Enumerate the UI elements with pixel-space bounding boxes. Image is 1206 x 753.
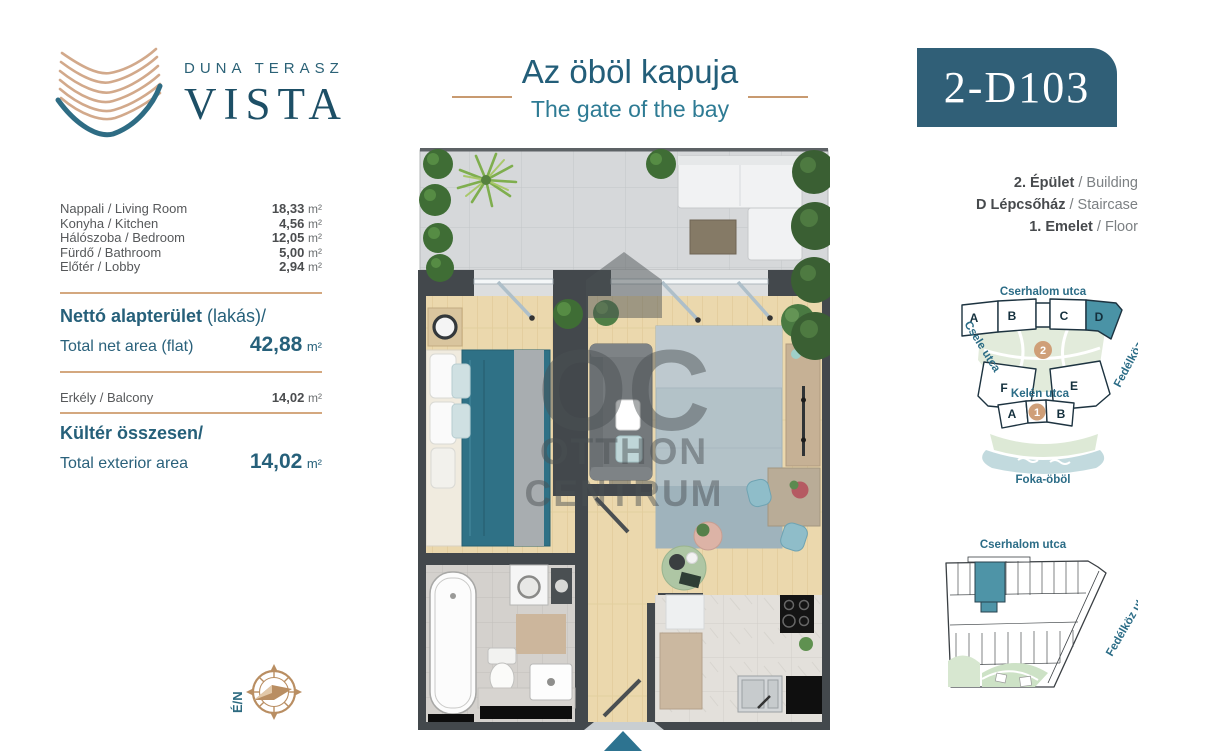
room-unit: m² [308,246,322,260]
divider [60,412,322,414]
kitchen-cabinet [666,595,704,629]
bath-mat [516,614,566,654]
brand-line1: DUNA TERASZ [184,60,348,77]
shore-green [990,434,1098,457]
brand-text: DUNA TERASZ VISTA [184,60,348,130]
compass-north-label: É/N [230,691,245,713]
room-value: 12,05 [272,230,305,245]
clock [434,316,456,338]
room-unit: m² [308,260,322,274]
kitchen-island [660,633,702,709]
plant-highlight [785,308,799,322]
floor-line: 1. Emelet / Floor [858,216,1138,238]
watermark-line2: CENTRUM [525,473,724,514]
dark-mat [480,706,572,719]
block-E-label: E [1070,379,1078,393]
bed [426,350,550,546]
room-row: Hálószoba / Bedroom 12,05 m² [60,230,322,245]
street-label-mid: Kelén utca [1011,388,1070,400]
room-unit: m² [308,202,322,216]
lower-block-A-label: A [1008,407,1017,421]
divider [60,292,322,294]
room-label: Előtér / Lobby [60,259,140,274]
building-rest: / Building [1074,175,1138,191]
building-line: 2. Épület / Building [858,172,1138,194]
brochure-page: DUNA TERASZ VISTA Az öböl kapuja The gat… [0,0,1206,753]
street-label-top: Cserhalom utca [1000,286,1087,298]
room-value: 4,56 [279,216,304,231]
brand-line2: VISTA [184,78,348,130]
unit-code-badge: 2-D103 [917,48,1117,127]
room-unit: m² [308,217,322,231]
block-B-label: B [1008,309,1017,323]
hob [780,595,814,633]
room-value: 5,00 [279,245,304,260]
room-value: 2,94 [279,259,304,274]
exterior-line: Total exterior area 14,02 m² [60,450,322,474]
phase-2-number: 2 [1040,345,1046,357]
dark-mat [428,714,474,723]
floor-rest: / Floor [1093,219,1138,235]
room-label: Konyha / Kitchen [60,216,158,231]
title-hungarian: Az öböl kapuja [440,53,820,91]
room-value: 18,33 [272,201,305,216]
floor-mini-map: Cserhalom utca [938,537,1138,719]
appliance [786,676,822,714]
entrance-marker [604,731,642,751]
building-bold: 2. Épület [1014,175,1074,191]
location-info: 2. Épület / Building D Lépcsőház / Stair… [858,172,1138,238]
room-row: Konyha / Kitchen 4,56 m² [60,216,322,231]
balcony-value: 14,02 [272,390,305,405]
project-title: Az öböl kapuja The gate of the bay [440,53,820,123]
room-row: Előtér / Lobby 2,94 m² [60,259,322,274]
title-rule-right [748,96,808,98]
street-label-top: Cserhalom utca [980,539,1067,551]
floor-plan: OC OTTHON CENTRUM [418,148,830,730]
block-connector [1036,303,1050,327]
room-area-list: Nappali / Living Room 18,33 m² Konyha / … [60,201,322,274]
exterior-title: Kültér összesen/ [60,423,203,444]
sideboard [786,344,820,466]
net-area-line: Total net area (flat) 42,88 m² [60,333,322,357]
staircase-line: D Lépcsőház / Staircase [858,194,1138,216]
room-unit: m² [308,231,322,245]
exterior-value: 14,02 [250,450,303,473]
block-B [998,299,1036,332]
exterior-label: Total exterior area [60,455,188,473]
divider [60,371,322,373]
block-C-label: C [1060,309,1069,323]
room-label: Hálószoba / Bedroom [60,230,185,245]
net-area-label: Total net area (flat) [60,338,193,356]
toilet [488,648,516,693]
street-label-right: Fedélköz utca [1104,586,1138,658]
kitchen [655,595,822,722]
net-area-value: 42,88 [250,333,303,356]
block-D-label: D [1095,310,1104,324]
staircase-bold: D Lépcsőház [976,197,1065,213]
room-label: Fürdő / Bathroom [60,245,161,260]
brand-swoosh-icon [52,45,167,141]
side-table [694,522,722,550]
room-label: Nappali / Living Room [60,201,187,216]
herb-pot [799,637,813,651]
kitchen-sink [738,676,782,712]
room-row: Nappali / Living Room 18,33 m² [60,201,322,216]
site-map: Cserhalom utca A B C D F E 2 Csele utca … [948,284,1138,486]
bathroom [426,565,575,723]
lower-block-B-label: B [1057,407,1066,421]
plant-highlight [557,302,571,316]
title-english: The gate of the bay [440,96,820,123]
room-row: Fürdő / Bathroom 5,00 m² [60,245,322,260]
net-area-title: Nettó alapterület (lakás)/ [60,306,266,327]
compass-icon: É/N [226,656,308,726]
net-area-title-bold: Nettó alapterület [60,306,202,326]
bay-label: Foka-öböl [1016,474,1071,486]
floor-bold: 1. Emelet [1029,219,1093,235]
balcony-unit: m² [308,391,322,405]
exterior-unit: m² [307,456,322,471]
block-F-label: F [1000,381,1007,395]
balcony-row: Erkély / Balcony 14,02 m² [60,390,322,405]
net-area-unit: m² [307,339,322,354]
watermark-line1: OTTHON [540,431,708,472]
net-area-title-rest: (lakás)/ [202,306,266,326]
phase-1-number: 1 [1034,407,1040,419]
balcony-label: Erkély / Balcony [60,390,153,405]
coffee-table [662,546,706,590]
title-rule-left [452,96,512,98]
staircase-rest: / Staircase [1065,197,1138,213]
entrance-threshold [584,722,664,730]
outdoor-table [690,220,736,254]
